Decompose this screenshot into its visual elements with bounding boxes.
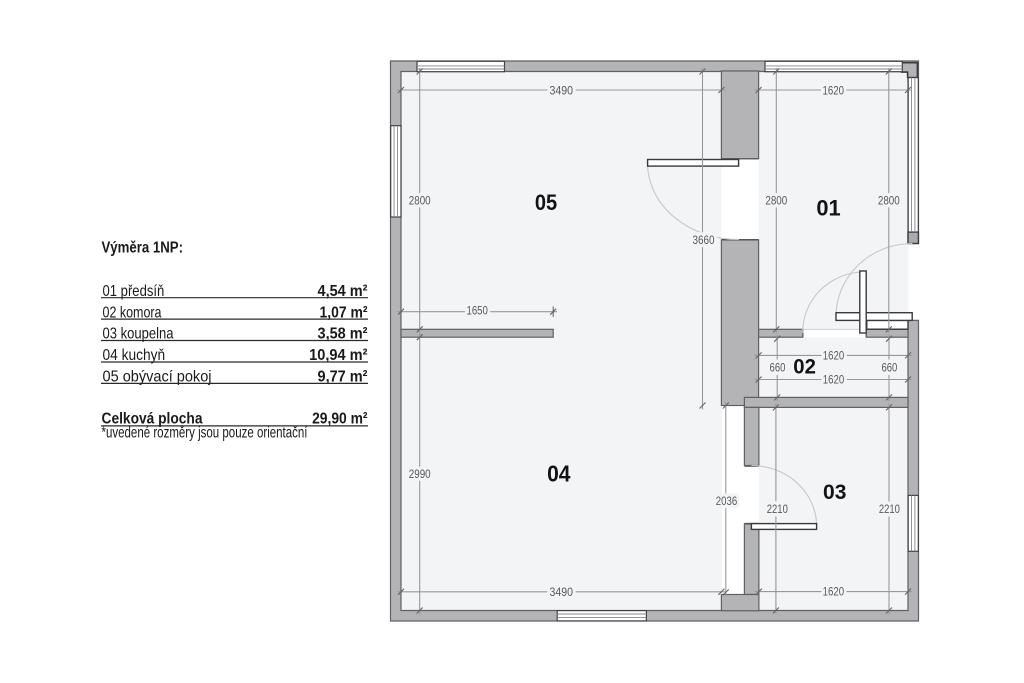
- svg-text:3490: 3490: [550, 83, 574, 97]
- svg-text:*uvedené rozměry jsou pouze or: *uvedené rozměry jsou pouze orientační: [102, 424, 308, 441]
- svg-text:2210: 2210: [879, 502, 900, 516]
- svg-text:03: 03: [823, 479, 846, 504]
- svg-text:Výměra 1NP:: Výměra 1NP:: [102, 240, 184, 257]
- svg-text:2990: 2990: [409, 467, 431, 481]
- svg-text:2800: 2800: [409, 194, 431, 208]
- svg-text:2800: 2800: [765, 194, 787, 208]
- svg-text:29,90 m²: 29,90 m²: [312, 410, 367, 427]
- svg-text:2800: 2800: [878, 194, 900, 208]
- svg-text:1650: 1650: [466, 303, 488, 317]
- svg-text:01: 01: [816, 195, 840, 220]
- svg-text:04: 04: [547, 461, 571, 487]
- svg-text:2036: 2036: [716, 494, 738, 508]
- svg-text:1620: 1620: [823, 585, 845, 599]
- svg-text:660: 660: [770, 361, 786, 375]
- svg-text:02: 02: [793, 353, 816, 378]
- svg-text:3660: 3660: [693, 233, 715, 247]
- svg-text:2210: 2210: [767, 502, 788, 516]
- svg-text:1620: 1620: [823, 372, 845, 386]
- svg-text:660: 660: [881, 361, 897, 375]
- svg-text:05: 05: [535, 190, 557, 215]
- svg-text:1620: 1620: [823, 83, 845, 97]
- svg-text:3490: 3490: [550, 585, 574, 599]
- svg-text:1620: 1620: [823, 348, 845, 362]
